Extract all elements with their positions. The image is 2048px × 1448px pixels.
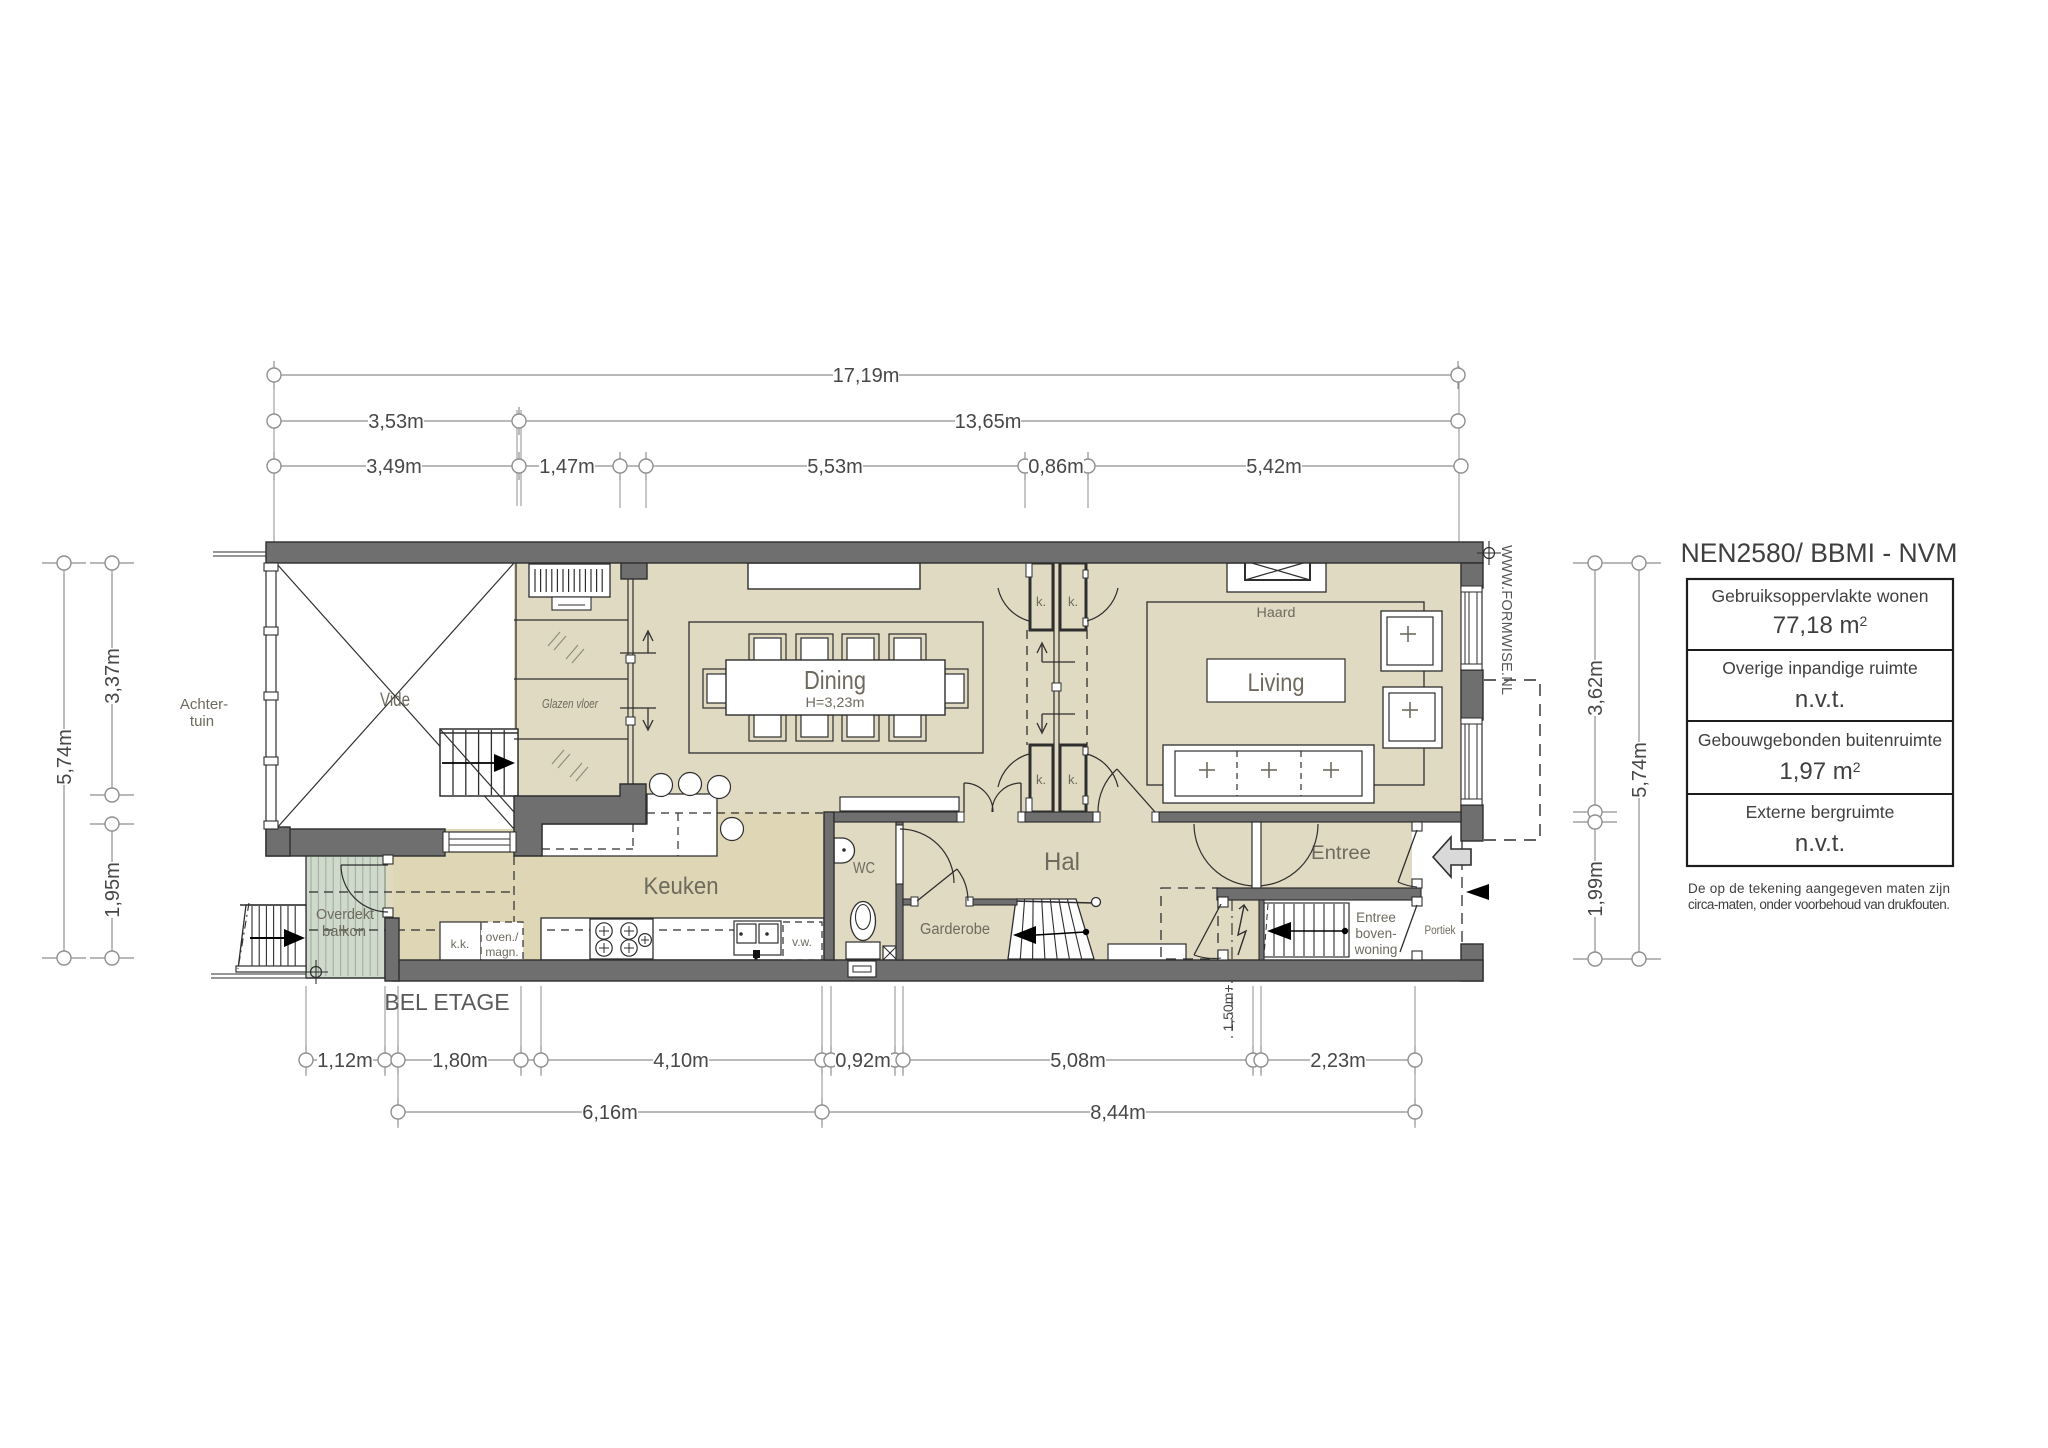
- svg-text:2,23m: 2,23m: [1310, 1050, 1366, 1072]
- svg-text:0,86m: 0,86m: [1028, 456, 1084, 478]
- svg-text:5,74m: 5,74m: [54, 729, 76, 785]
- svg-text:1,99m: 1,99m: [1585, 861, 1607, 917]
- svg-text:Vide: Vide: [380, 690, 410, 711]
- svg-text:Haard: Haard: [1257, 605, 1296, 620]
- svg-text:1,80m: 1,80m: [432, 1050, 488, 1072]
- svg-text:k.: k.: [1068, 772, 1078, 787]
- svg-text:k.: k.: [1036, 772, 1046, 787]
- svg-text:Glazen vloer: Glazen vloer: [542, 697, 599, 711]
- svg-text:Gebruiksoppervlakte wonen: Gebruiksoppervlakte wonen: [1712, 586, 1929, 606]
- svg-text:3,37m: 3,37m: [102, 648, 124, 704]
- svg-text:0,92m: 0,92m: [835, 1050, 891, 1072]
- svg-text:WC: WC: [853, 860, 875, 877]
- svg-text:v.w.: v.w.: [792, 935, 812, 949]
- svg-text:Achter-: Achter-: [180, 696, 228, 713]
- svg-text:Portiek: Portiek: [1425, 925, 1456, 937]
- svg-text:Entree: Entree: [1356, 910, 1396, 925]
- svg-text:6,16m: 6,16m: [582, 1102, 638, 1124]
- svg-text:BEL ETAGE: BEL ETAGE: [384, 989, 509, 1015]
- svg-text:Externe bergruimte: Externe bergruimte: [1746, 802, 1895, 822]
- svg-text:1,47m: 1,47m: [539, 456, 595, 478]
- svg-text:3,53m: 3,53m: [368, 411, 424, 433]
- svg-text:k.: k.: [1036, 594, 1046, 609]
- svg-text:De op de tekening aangegeven m: De op de tekening aangegeven maten zijn: [1688, 881, 1950, 896]
- svg-text:Overdekt: Overdekt: [316, 906, 375, 923]
- svg-text:5,42m: 5,42m: [1246, 456, 1302, 478]
- svg-text:n.v.t.: n.v.t.: [1795, 830, 1845, 857]
- svg-text:1,97 m2: 1,97 m2: [1779, 758, 1860, 785]
- svg-text:5,08m: 5,08m: [1050, 1050, 1106, 1072]
- svg-text:Dining: Dining: [804, 665, 866, 695]
- svg-text:8,44m: 8,44m: [1090, 1102, 1146, 1124]
- svg-text:Garderobe: Garderobe: [920, 921, 990, 938]
- svg-text:13,65m: 13,65m: [955, 411, 1022, 433]
- svg-text:oven./: oven./: [486, 930, 519, 944]
- svg-text:boven-: boven-: [1355, 926, 1396, 941]
- svg-text:k.k.: k.k.: [451, 937, 470, 951]
- svg-text:circa-maten, onder voorbehoud: circa-maten, onder voorbehoud van drukfo…: [1688, 897, 1950, 912]
- svg-text:Entree: Entree: [1311, 843, 1371, 864]
- svg-text:balkon: balkon: [322, 923, 366, 940]
- svg-text:1,95m: 1,95m: [102, 862, 124, 918]
- svg-text:k.: k.: [1068, 594, 1078, 609]
- svg-text:5,53m: 5,53m: [807, 456, 863, 478]
- svg-text:WWW.FORMWISE.NL: WWW.FORMWISE.NL: [1498, 545, 1514, 695]
- svg-text:1,12m: 1,12m: [317, 1050, 373, 1072]
- svg-text:77,18 m2: 77,18 m2: [1773, 612, 1868, 639]
- svg-text:tuin: tuin: [190, 713, 214, 730]
- svg-text:Gebouwgebonden buitenruimte: Gebouwgebonden buitenruimte: [1698, 730, 1942, 750]
- svg-text:3,62m: 3,62m: [1585, 660, 1607, 716]
- svg-text:Overige inpandige ruimte: Overige inpandige ruimte: [1722, 658, 1918, 678]
- svg-text:5,74m: 5,74m: [1629, 742, 1651, 798]
- svg-text:magn.: magn.: [485, 945, 518, 959]
- svg-text:woning: woning: [1354, 942, 1398, 957]
- svg-text:Keuken: Keuken: [644, 873, 719, 900]
- svg-text:1,50m+: 1,50m+: [1220, 984, 1236, 1031]
- svg-text:4,10m: 4,10m: [653, 1050, 709, 1072]
- svg-text:NEN2580/ BBMI - NVM: NEN2580/ BBMI - NVM: [1681, 538, 1958, 568]
- svg-text:Living: Living: [1248, 669, 1305, 697]
- svg-text:H=3,23m: H=3,23m: [806, 694, 865, 710]
- svg-text:n.v.t.: n.v.t.: [1795, 686, 1845, 713]
- svg-text:3,49m: 3,49m: [366, 456, 422, 478]
- svg-text:17,19m: 17,19m: [833, 365, 900, 387]
- svg-text:Hal: Hal: [1044, 848, 1080, 876]
